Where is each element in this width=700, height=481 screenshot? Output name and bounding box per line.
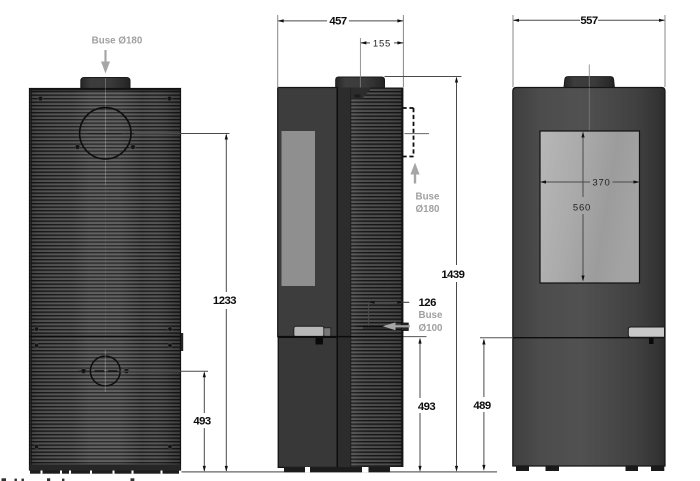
svg-text:370: 370 [592,178,610,189]
svg-text:1439: 1439 [441,269,464,281]
svg-text:489: 489 [473,400,491,412]
svg-text:Buse Ø180: Buse Ø180 [92,36,143,47]
svg-text:560: 560 [573,202,591,213]
svg-text:126: 126 [419,297,437,309]
svg-text:1233: 1233 [213,295,236,307]
svg-text:Ø180: Ø180 [416,204,441,215]
svg-text:557: 557 [580,15,598,27]
svg-text:Buse: Buse [416,192,441,203]
svg-text:Ø100: Ø100 [419,323,444,334]
svg-text:155: 155 [373,38,391,49]
svg-text:457: 457 [329,16,347,28]
svg-text:Buse: Buse [419,310,444,321]
svg-text:493: 493 [193,416,211,428]
svg-text:493: 493 [418,401,436,413]
